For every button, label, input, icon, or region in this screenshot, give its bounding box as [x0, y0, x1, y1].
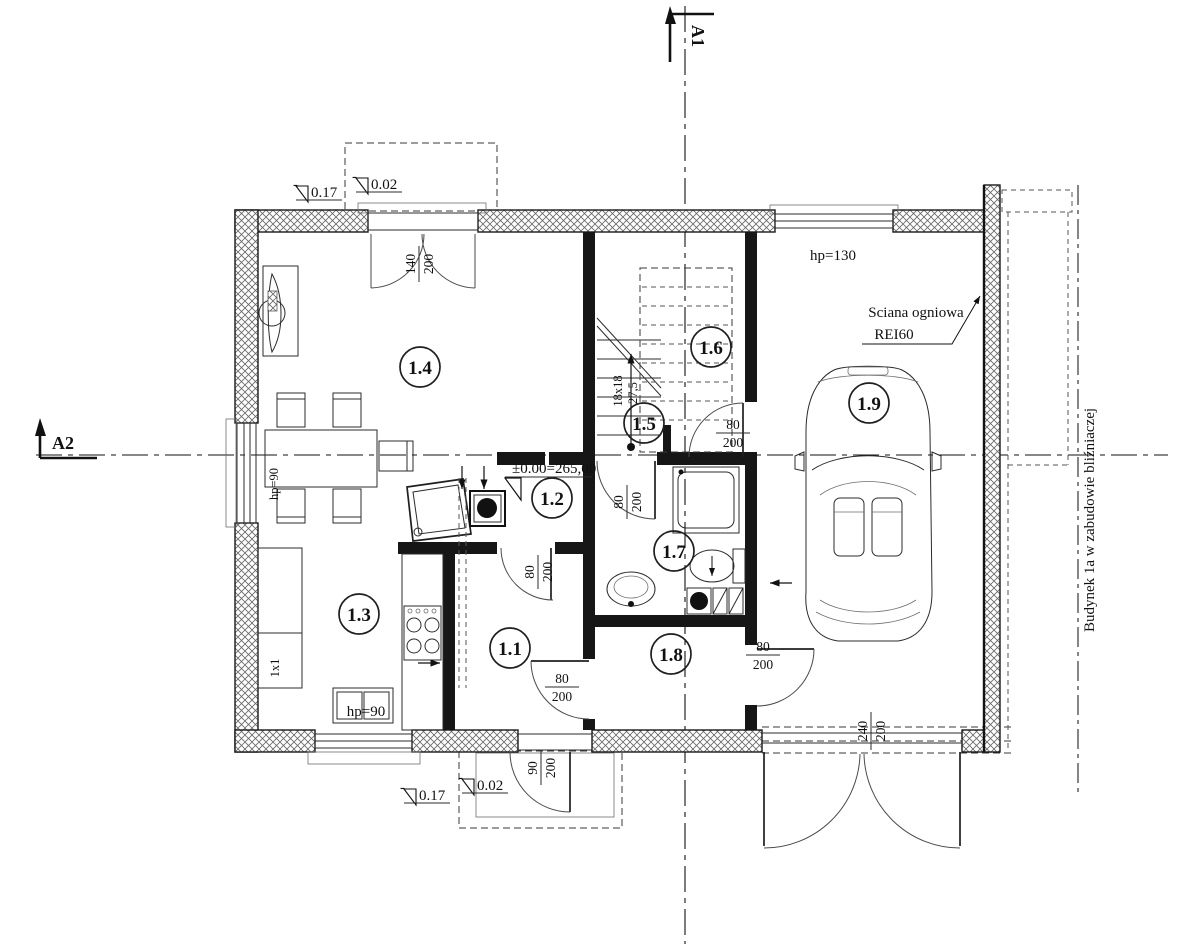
minus-sign: - [400, 780, 405, 796]
level-bottom-inner: - 0.02 [458, 770, 508, 795]
dim-height: 200 [543, 758, 558, 779]
kitchen-window-parapet: hp=90 [347, 704, 385, 720]
level-bottom-outer: - 0.17 [400, 780, 450, 805]
dim-balcony-door: 140 200 [403, 246, 436, 282]
car-seat [834, 498, 864, 556]
level-value: 0.17 [419, 788, 446, 804]
washbasin [607, 572, 655, 607]
garage-window-parapet: hp=130 [810, 248, 856, 264]
dim-width: 80 [726, 417, 740, 432]
minus-sign: - [352, 169, 357, 185]
room-number: 1.7 [662, 542, 686, 563]
room-label-1-5: 1.5 [624, 403, 664, 443]
level-value: 0.02 [371, 177, 397, 193]
toilet [690, 549, 745, 583]
dim-entrance-door: 90 200 [525, 751, 558, 785]
room-label-1-2: 1.2 [532, 478, 572, 518]
fire-wall [984, 185, 1000, 752]
room-number: 1.3 [347, 605, 371, 626]
room-number: 1.2 [540, 489, 564, 510]
dim-height: 200 [421, 254, 436, 275]
room-label-1-7: 1.7 [654, 531, 694, 571]
washer-and-shafts [687, 588, 743, 614]
room-number: 1.1 [498, 639, 522, 660]
dim-height: 200 [723, 435, 744, 450]
dim-height: 200 [552, 689, 573, 704]
wall [235, 210, 258, 423]
neighbor-wall-dashed [1002, 190, 1072, 212]
room-label-1-6: 1.6 [691, 327, 731, 367]
dim-door-1-6: 80 200 [716, 417, 750, 450]
level-value: 0.02 [477, 778, 503, 794]
firewall-text-2: REI60 [874, 327, 913, 343]
room-number: 1.8 [659, 645, 683, 666]
minus-sign: - [458, 770, 463, 786]
room-label-1-1: 1.1 [490, 628, 530, 668]
kitchen-counters [258, 548, 443, 730]
dim-width: 80 [522, 565, 537, 579]
furniture [258, 266, 941, 730]
wall [893, 210, 990, 232]
room-label-1-3: 1.3 [339, 594, 379, 634]
dim-door-1-8-left: 80 200 [545, 671, 579, 704]
wall [478, 210, 775, 232]
exterior-walls [235, 185, 1000, 752]
garage-window [770, 205, 898, 228]
firewall-text-1: Sciana ogniowa [868, 305, 964, 321]
dining-table [265, 393, 413, 523]
dim-height: 200 [629, 492, 644, 513]
left-window-parapet: hp=90 [267, 468, 281, 500]
section-marker-a1: A1 [665, 6, 714, 62]
wall [412, 730, 518, 752]
bathroom-fixtures [607, 467, 745, 614]
firewall-note: Sciana ogniowa REI60 [862, 296, 980, 344]
stove [404, 606, 441, 660]
dim-width: 90 [525, 761, 540, 775]
level-value: ±0.00=265,00 [512, 461, 596, 477]
shower [673, 467, 739, 533]
floor-plan-drawing: A1 A2 [0, 0, 1182, 950]
dim-width: 80 [611, 495, 626, 509]
fireplace-tv-unit [259, 266, 298, 356]
kitchen-window [308, 734, 420, 764]
dim-door-1-1: 80 200 [522, 555, 555, 589]
top-porch-outline [345, 143, 497, 211]
section-marker-a2: A2 [35, 418, 97, 458]
stair-riser-note: 18x18 [611, 375, 625, 406]
wall [235, 523, 258, 752]
dim-height: 200 [753, 657, 774, 672]
room-label-1-4: 1.4 [400, 347, 440, 387]
room-number: 1.5 [632, 414, 656, 435]
wall [592, 730, 762, 752]
door-bathroom [597, 461, 655, 519]
floor-plan-page: A1 A2 [0, 0, 1182, 950]
level-top-outer: - 0.17 [293, 177, 342, 202]
window-left [226, 419, 256, 527]
boundary-note: Budynek 1a w zabudowie bliźniaczej [1082, 408, 1098, 632]
room-label-1-9: 1.9 [849, 383, 889, 423]
dim-width: 140 [403, 254, 418, 275]
dim-width: 240 [855, 721, 870, 742]
dim-door-bathroom: 80 200 [611, 485, 644, 519]
room-number: 1.9 [857, 394, 881, 415]
section-label-a1: A1 [688, 25, 708, 47]
a2-arrow-icon [35, 418, 46, 436]
level-value: 0.17 [311, 185, 338, 201]
wall [235, 730, 315, 752]
kitchen-note: 1x1 [268, 659, 282, 678]
car-seat [872, 498, 902, 556]
level-marker-icon [505, 478, 521, 500]
room-number: 1.6 [699, 338, 723, 359]
stair-tread-note: 27,5 [626, 382, 640, 404]
dim-height: 200 [540, 562, 555, 583]
balcony-door [358, 203, 486, 288]
dim-garage-door: 240 200 [855, 712, 888, 750]
section-label-a2: A2 [52, 433, 74, 453]
room-number: 1.4 [408, 358, 432, 379]
minus-sign: - [293, 177, 298, 193]
dim-width: 80 [756, 639, 770, 654]
garage-door [762, 733, 962, 848]
dim-width: 80 [555, 671, 569, 686]
dim-height: 200 [873, 721, 888, 742]
level-top-inner: - 0.02 [352, 169, 402, 194]
